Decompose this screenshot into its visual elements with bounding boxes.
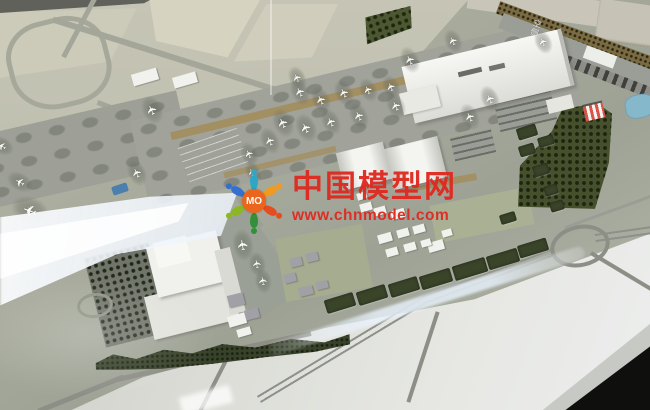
- watermark-brand: 中国模型网: [292, 171, 457, 204]
- blue-vehicle: [111, 182, 129, 196]
- airport-model-photo: ✈✈✈✈✈✈✈✈✈✈✈✈✈✈✈✈✈✈✈✈✈✈✈✈✈✈✈ 空侧 MO 中国模型网 …: [0, 0, 650, 410]
- small-white-building: [403, 242, 417, 253]
- hedge-row: [324, 292, 357, 314]
- logo-text: MO: [246, 196, 262, 207]
- watermark-text-block: 中国模型网 www.chnmodel.com: [292, 171, 457, 225]
- watermark: MO 中国模型网 www.chnmodel.com: [225, 171, 457, 229]
- logo-person-figure: [250, 213, 258, 228]
- small-white-building: [236, 326, 252, 338]
- lake: [623, 91, 650, 120]
- small-white-building: [385, 247, 399, 258]
- glass-seam: [270, 0, 272, 95]
- watermark-logo-icon: MO: [225, 171, 283, 229]
- logo-center-badge: MO: [242, 189, 266, 213]
- small-white-building: [396, 228, 410, 239]
- hedge-row: [549, 199, 565, 213]
- parking-lot-cars: [450, 129, 496, 162]
- logo-person-figure: [250, 175, 258, 190]
- hedge-row: [388, 276, 421, 298]
- watermark-url: www.chnmodel.com: [292, 207, 457, 225]
- small-white-building: [377, 232, 393, 245]
